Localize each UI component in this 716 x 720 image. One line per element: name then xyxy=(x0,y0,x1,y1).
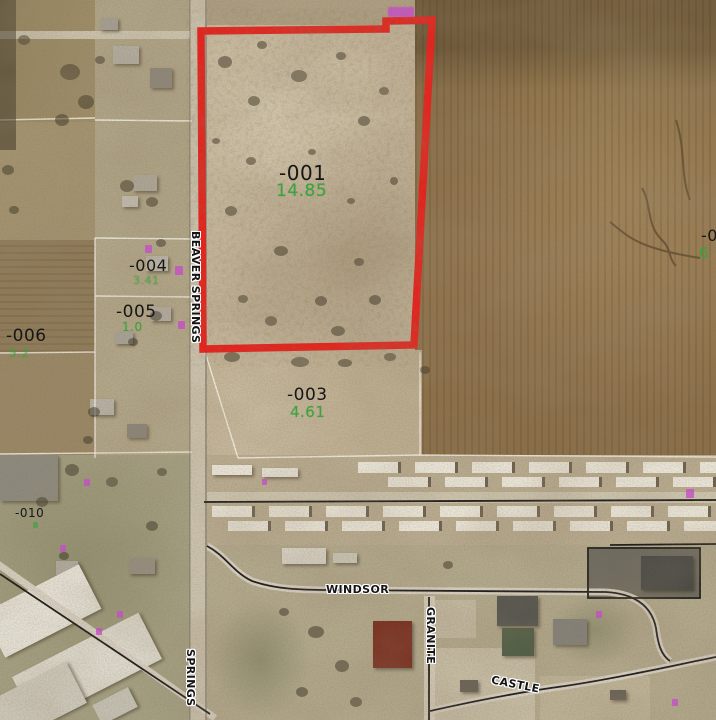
house xyxy=(127,424,147,438)
street-label-beaver-springs: BEAVER SPRINGS xyxy=(189,231,202,343)
parcel-005-id: -005 xyxy=(116,302,157,322)
road-beaver-springs xyxy=(190,0,207,720)
house xyxy=(129,558,155,574)
house xyxy=(90,399,114,415)
trailer-row xyxy=(212,506,716,517)
house xyxy=(122,196,138,207)
annotation-mark xyxy=(96,628,102,635)
annotation-mark xyxy=(145,245,152,253)
parcel-003-id: -003 xyxy=(287,385,328,405)
field-region xyxy=(0,352,95,456)
annotation-mark xyxy=(175,266,183,275)
parking-lot xyxy=(540,676,650,720)
grass-patch xyxy=(210,600,310,720)
parcel-005-acreage: 1.0 xyxy=(122,320,143,334)
building xyxy=(282,548,326,564)
parcel-edge-id: -0 xyxy=(701,226,716,245)
annotation-mark xyxy=(388,7,414,17)
shed xyxy=(610,690,626,700)
annotation-mark-green xyxy=(33,522,38,528)
annotation-mark xyxy=(178,321,185,329)
trailer-row xyxy=(388,477,716,487)
street-label-springs: SPRINGS xyxy=(184,649,197,707)
house xyxy=(133,175,157,191)
parcel-006-id: -006 xyxy=(6,326,47,346)
parcel-004-id: -004 xyxy=(129,256,167,275)
field-region xyxy=(0,122,95,240)
trailer-row xyxy=(358,462,716,473)
parcel-003-acreage: 4.61 xyxy=(290,403,325,421)
plowed-field xyxy=(415,0,716,462)
building xyxy=(497,596,538,626)
annotation-mark xyxy=(596,611,602,618)
parcel-edge-acreage: 6 xyxy=(699,244,709,262)
parcel-001-acreage: 14.85 xyxy=(276,181,327,201)
parcel-004-acreage: 3.41 xyxy=(133,274,160,287)
building xyxy=(333,553,357,563)
building xyxy=(641,556,693,590)
annotation-mark xyxy=(686,489,694,498)
road-segment xyxy=(0,31,191,39)
aerial-parcel-map[interactable]: -001 14.85 -004 3.41 -005 1.0 -006 5.2 -… xyxy=(0,0,716,720)
trailer-park-drive xyxy=(205,492,716,503)
red-roof-building xyxy=(373,621,412,668)
trailer-row xyxy=(228,521,716,531)
house xyxy=(100,18,118,30)
green-roof-building xyxy=(502,628,534,656)
annotation-mark xyxy=(672,699,678,706)
parcel-006-acreage: 5.2 xyxy=(9,346,30,360)
shed xyxy=(460,680,478,692)
trailer xyxy=(212,465,252,475)
trailer xyxy=(262,468,298,477)
street-label-granite: GRANITE xyxy=(424,607,437,664)
annotation-mark xyxy=(262,479,267,485)
annotation-mark xyxy=(60,545,66,552)
house xyxy=(113,46,139,64)
house xyxy=(150,68,172,88)
annotation-mark xyxy=(84,479,90,486)
annotation-mark xyxy=(117,611,123,618)
parcel-010-id: -010 xyxy=(15,506,44,520)
street-label-windsor: WINDSOR xyxy=(326,583,389,596)
building xyxy=(0,455,58,501)
building xyxy=(553,619,587,645)
